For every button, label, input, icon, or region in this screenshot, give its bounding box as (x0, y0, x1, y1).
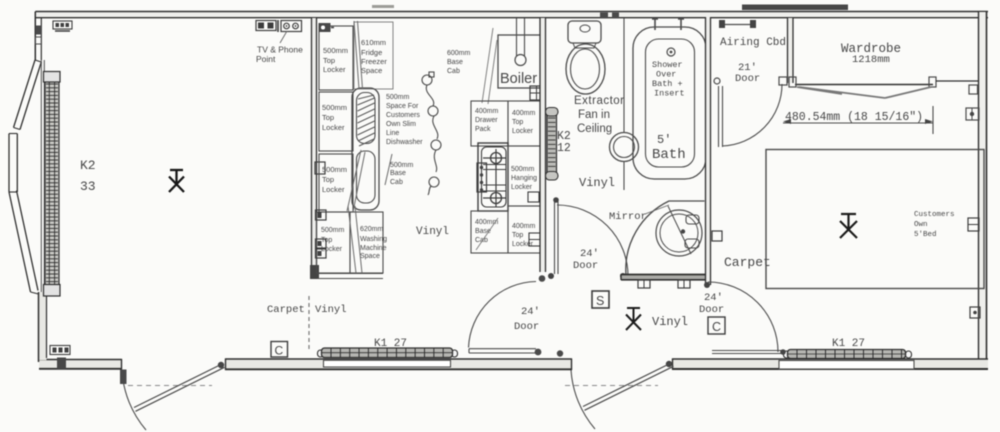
svg-text:K1 27: K1 27 (832, 338, 865, 350)
svg-text:Locker: Locker (512, 128, 534, 135)
svg-text:Customers: Customers (386, 112, 420, 119)
svg-text:500mm: 500mm (511, 166, 535, 173)
svg-text:Base: Base (447, 59, 463, 66)
svg-text:Insert: Insert (654, 89, 685, 99)
svg-text:500mm: 500mm (322, 165, 347, 174)
svg-text:Vinyl: Vinyl (652, 315, 688, 329)
svg-text:24′: 24′ (580, 248, 599, 260)
svg-text:Mirror: Mirror (609, 211, 647, 223)
svg-text:Machine: Machine (360, 245, 387, 252)
svg-text:Boiler: Boiler (500, 71, 537, 87)
svg-text:Airing Cbd: Airing Cbd (720, 37, 786, 49)
svg-text:Pack: Pack (475, 126, 491, 133)
svg-text:5′: 5′ (657, 133, 671, 147)
svg-text:600mm: 600mm (447, 50, 471, 57)
svg-text:Locker: Locker (512, 241, 534, 248)
svg-text:12: 12 (557, 142, 571, 155)
svg-text:Door: Door (699, 304, 724, 316)
svg-text:500mm: 500mm (323, 46, 348, 55)
svg-text:Bath +: Bath + (652, 79, 683, 89)
svg-text:Top: Top (512, 119, 523, 126)
svg-text:Base: Base (390, 170, 406, 177)
svg-text:Hanging: Hanging (511, 175, 537, 182)
svg-text:Carpet: Carpet (267, 304, 305, 316)
svg-text:400mm: 400mm (512, 223, 536, 230)
svg-text:33: 33 (80, 179, 96, 194)
svg-text:Vinyl: Vinyl (315, 304, 347, 316)
svg-text:24′: 24′ (704, 292, 723, 304)
svg-text:Top: Top (512, 232, 523, 239)
svg-text:K2: K2 (80, 158, 96, 173)
svg-text:Carpet: Carpet (724, 255, 771, 270)
svg-text:400mm: 400mm (475, 108, 499, 115)
svg-text:Door: Door (735, 73, 760, 85)
svg-text:Vinyl: Vinyl (579, 176, 615, 190)
svg-text:620mm: 620mm (360, 226, 384, 233)
svg-text:Dishwasher: Dishwasher (386, 139, 423, 146)
svg-text:Top: Top (322, 175, 334, 184)
svg-text:24′: 24′ (521, 306, 540, 318)
svg-text:Locker: Locker (323, 65, 346, 74)
svg-text:Fridge: Fridge (361, 48, 382, 57)
svg-text:Extractor: Extractor (574, 95, 625, 107)
svg-text:Ceiling: Ceiling (577, 123, 612, 135)
svg-text:Top: Top (322, 113, 334, 122)
svg-text:Cab: Cab (475, 237, 488, 244)
svg-text:Freezer: Freezer (361, 57, 387, 66)
svg-text:480.54mm (18 15/16″): 480.54mm (18 15/16″) (785, 111, 923, 124)
svg-text:Own: Own (914, 221, 928, 229)
svg-text:Bath: Bath (652, 147, 686, 163)
svg-text:1218mm: 1218mm (852, 54, 890, 66)
svg-text:Space For: Space For (386, 103, 419, 110)
svg-text:610mm: 610mm (361, 38, 386, 47)
svg-text:Space: Space (361, 66, 382, 75)
svg-text:Cab: Cab (447, 68, 460, 75)
svg-text:Washing: Washing (360, 236, 387, 243)
svg-text:Top: Top (323, 56, 335, 65)
svg-text:Locker: Locker (511, 184, 533, 191)
svg-text:500mm: 500mm (386, 94, 410, 101)
svg-text:Cab: Cab (390, 179, 403, 186)
svg-text:5′Bed: 5′Bed (914, 231, 937, 239)
svg-text:500mm: 500mm (322, 103, 347, 112)
svg-text:Locker: Locker (322, 185, 345, 194)
svg-text:Point: Point (256, 54, 276, 64)
svg-text:Locker: Locker (322, 123, 345, 132)
svg-text:Drawer: Drawer (475, 117, 498, 124)
svg-text:500mm: 500mm (390, 162, 414, 169)
svg-text:K1 27: K1 27 (374, 338, 407, 350)
svg-text:Vinyl: Vinyl (416, 226, 449, 238)
svg-text:TV & Phone: TV & Phone (257, 45, 303, 55)
svg-text:Fan in: Fan in (578, 109, 610, 121)
svg-text:Line: Line (386, 130, 399, 137)
svg-text:Over: Over (656, 70, 676, 80)
svg-text:Door: Door (573, 260, 598, 272)
svg-text:Customers: Customers (914, 211, 955, 219)
svg-text:C: C (712, 320, 721, 334)
svg-text:S: S (596, 294, 604, 308)
svg-text:Top: Top (321, 237, 332, 244)
svg-text:C: C (275, 344, 284, 358)
svg-text:Own Slim: Own Slim (386, 121, 416, 128)
svg-text:400mm: 400mm (512, 110, 536, 117)
svg-text:500mm: 500mm (321, 227, 345, 234)
svg-text:Space: Space (360, 253, 380, 260)
svg-text:Shower: Shower (652, 60, 683, 70)
svg-text:Door: Door (514, 321, 539, 333)
